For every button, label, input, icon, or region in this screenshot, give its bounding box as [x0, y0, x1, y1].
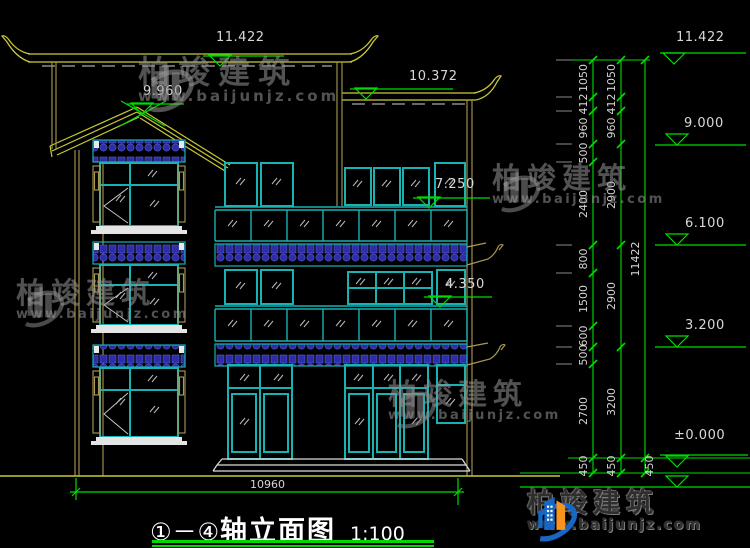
- dim-c1-500a: 500: [578, 125, 590, 181]
- main-roof: [2, 36, 378, 62]
- right-elev-zero: ±0.000: [674, 428, 725, 443]
- elev-label-floor2: 4.350: [445, 277, 485, 292]
- dim-c1-2700: 2700: [578, 383, 590, 439]
- bay-side-trims: [93, 166, 185, 433]
- right-elev-top: 11.422: [676, 30, 725, 45]
- title-underline-thin: [152, 545, 434, 547]
- right-elev-3: 3.200: [685, 318, 725, 333]
- elev-label-main-roof: 11.422: [216, 30, 265, 45]
- elev-label-right-roof: 10.372: [409, 69, 458, 84]
- floor2-windows: [225, 270, 465, 304]
- dim-c2-2900a: 2900: [606, 167, 618, 223]
- cad-elevation-screenshot: 11.422 9.960 10.372 7.250 4.350 10960 11…: [0, 0, 750, 548]
- plinth-steps: [213, 459, 470, 471]
- dim-c2-3200: 3200: [606, 374, 618, 430]
- right-elev-6: 6.100: [685, 216, 725, 231]
- dim-c3-11422: 11422: [630, 231, 642, 287]
- dim-c2-2900b: 2900: [606, 268, 618, 324]
- floor1-doors: [228, 365, 465, 459]
- floor2-railing: [215, 306, 467, 341]
- casement-symbols: [104, 188, 128, 434]
- dim-c2-450: 450: [606, 438, 618, 494]
- dim-c3-450: 450: [644, 438, 656, 494]
- dim-c1-2400: 2400: [578, 176, 590, 232]
- dim-c1-450: 450: [578, 438, 590, 494]
- brand-logo-icon: [527, 490, 579, 542]
- right-elev-9: 9.000: [684, 116, 724, 131]
- floor3-railing: [215, 207, 467, 241]
- elev-label-left-gable: 9.960: [143, 84, 183, 99]
- floor3-windows: [225, 163, 465, 206]
- dim-overall-width: 10960: [250, 478, 285, 491]
- title-underline-thick: [152, 540, 434, 543]
- dim-c2-960: 960: [606, 100, 618, 156]
- brand-logo: 柏竣建筑 www.baijunjz.com: [527, 490, 702, 534]
- roof-dashed-lines: [42, 66, 468, 104]
- dim-c1-500b: 500: [578, 327, 590, 383]
- elev-label-floor3: 7.250: [435, 177, 475, 192]
